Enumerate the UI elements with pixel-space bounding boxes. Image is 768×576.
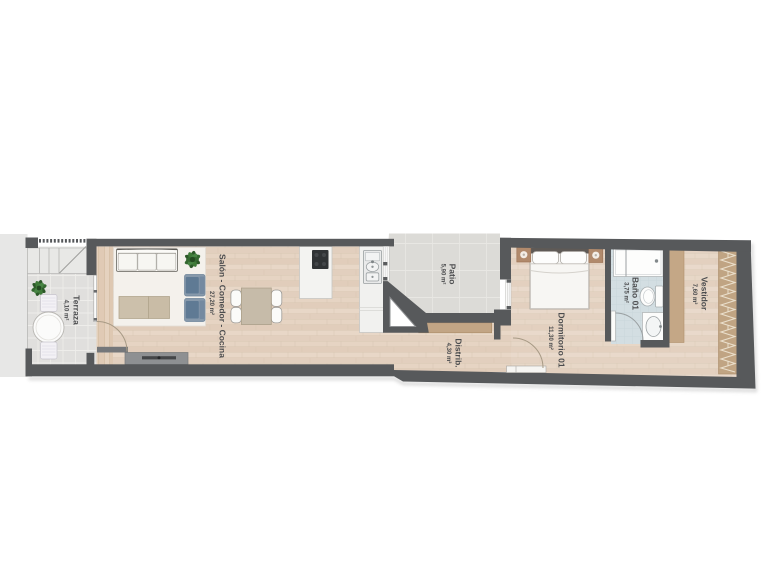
svg-text:Baño 01: Baño 01 xyxy=(631,277,641,310)
svg-text:Dormitorio 01: Dormitorio 01 xyxy=(557,312,567,368)
svg-text:4,30 m²: 4,30 m² xyxy=(445,343,452,364)
svg-text:4,10 m²: 4,10 m² xyxy=(63,300,70,321)
svg-text:5,90 m²: 5,90 m² xyxy=(440,264,447,285)
svg-text:11,30 m²: 11,30 m² xyxy=(547,326,554,350)
svg-text:Patio: Patio xyxy=(448,264,458,285)
svg-text:Distrib.: Distrib. xyxy=(454,338,464,367)
svg-text:Vestidor: Vestidor xyxy=(700,277,710,311)
svg-text:Salón - Comedor - Cocina: Salón - Comedor - Cocina xyxy=(218,254,228,358)
svg-text:3,75 m²: 3,75 m² xyxy=(623,282,630,303)
svg-text:7,60 m²: 7,60 m² xyxy=(691,284,698,305)
svg-text:Terraza: Terraza xyxy=(72,295,82,325)
svg-text:27,20 m²: 27,20 m² xyxy=(208,291,215,315)
